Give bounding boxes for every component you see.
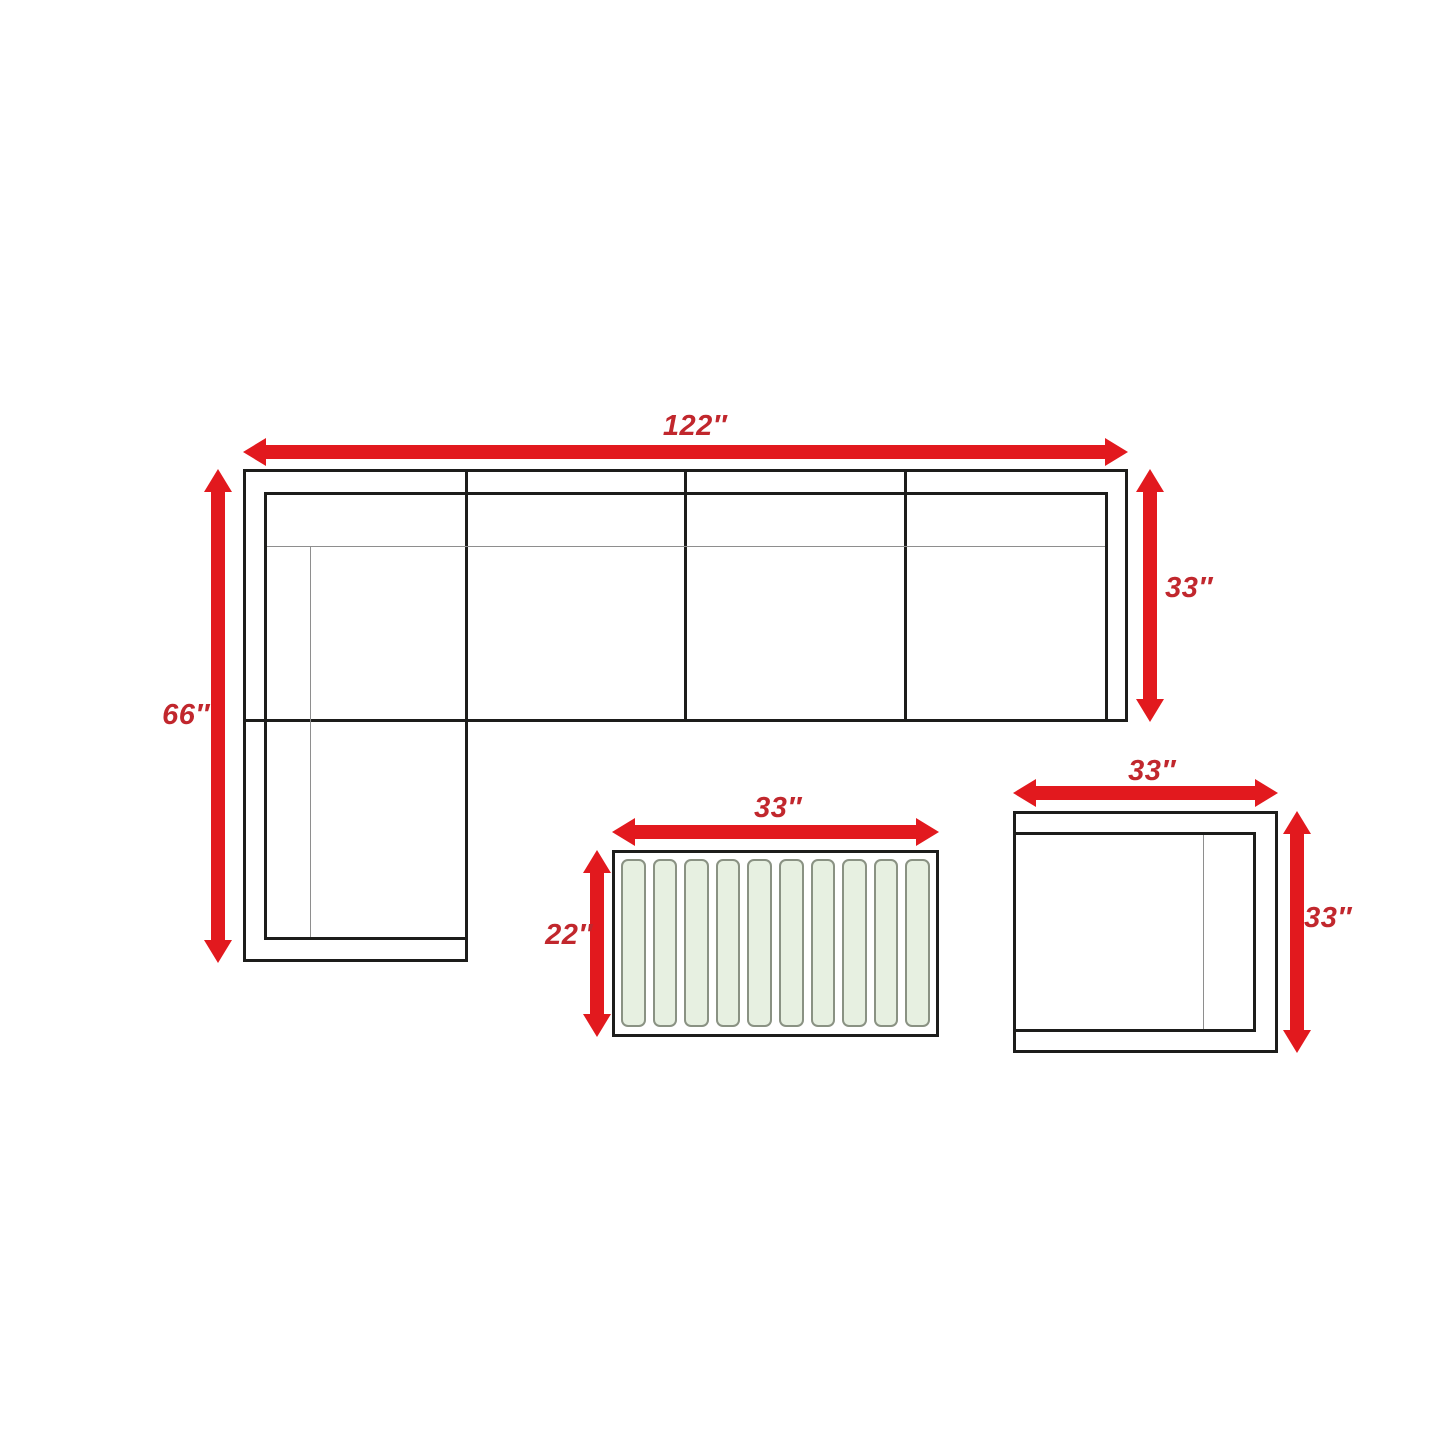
- sofa-chaise-cushion-line: [310, 546, 311, 937]
- sofa-seat-divider: [904, 469, 907, 722]
- sofa-backrest-cushion-line: [267, 546, 1105, 547]
- table-slat: [779, 859, 804, 1027]
- sofa-depth-label: 33″: [1139, 570, 1239, 606]
- arrowhead-right-icon: [916, 818, 939, 846]
- arrowhead-down-icon: [204, 940, 232, 963]
- sofa-chaise-outline: [243, 722, 468, 962]
- end-table-inner-top-line: [1016, 832, 1256, 835]
- sofa-chaise-inner-bottom-line: [264, 937, 468, 940]
- table-slat: [905, 859, 930, 1027]
- arrowhead-down-icon: [1136, 699, 1164, 722]
- table-slat: [874, 859, 899, 1027]
- table-slat: [842, 859, 867, 1027]
- table-slat: [747, 859, 772, 1027]
- arrow-shaft: [263, 445, 1108, 459]
- arrow-shaft: [632, 825, 919, 839]
- table-slat: [653, 859, 678, 1027]
- table-slat: [621, 859, 646, 1027]
- table-slat: [811, 859, 836, 1027]
- sofa-seat-divider: [684, 469, 687, 722]
- arrowhead-down-icon: [1283, 1030, 1311, 1053]
- sofa-inner-left-arm-line: [264, 492, 267, 940]
- sofa-seat-divider: [465, 469, 468, 962]
- end-table-outline: [1013, 811, 1278, 1053]
- sofa-width-label: 122″: [625, 408, 765, 444]
- sofa-chaise-length-label: 66″: [136, 697, 236, 733]
- end-table-depth-label: 33″: [1278, 900, 1378, 936]
- arrowhead-right-icon: [1255, 779, 1278, 807]
- coffee-table-width-label: 33″: [728, 790, 828, 826]
- sofa-inner-back-line: [264, 492, 1108, 495]
- furniture-dimension-diagram: 122″ 33″ 66″ 33″ 22″: [0, 0, 1445, 1445]
- coffee-table-depth-label: 22″: [519, 917, 619, 953]
- end-table-cushion-line: [1203, 835, 1204, 1029]
- end-table-inner-right-line: [1253, 832, 1256, 1032]
- sofa-inner-right-arm-line: [1105, 492, 1108, 722]
- coffee-table-slats: [621, 859, 930, 1027]
- arrowhead-down-icon: [583, 1014, 611, 1037]
- end-table-width-label: 33″: [1102, 753, 1202, 789]
- end-table-inner-bottom-line: [1016, 1029, 1256, 1032]
- arrowhead-right-icon: [1105, 438, 1128, 466]
- table-slat: [684, 859, 709, 1027]
- table-slat: [716, 859, 741, 1027]
